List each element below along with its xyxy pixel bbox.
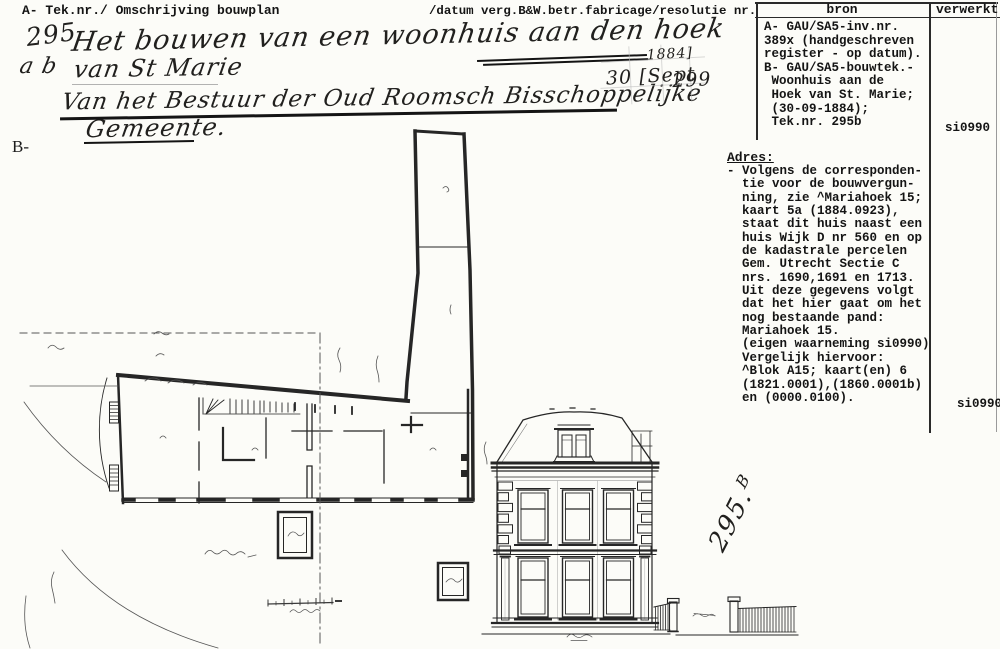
facade-base-ground	[482, 618, 798, 635]
handwritten-prefix2: a b	[17, 54, 60, 79]
rotated-plan-number-main: 295.	[703, 482, 758, 557]
plan-outbuilding-b	[438, 563, 468, 600]
facade-dormer-window	[554, 425, 594, 462]
table-left-border	[756, 2, 758, 140]
floor-plan-drawing	[0, 120, 500, 649]
plan-porch	[99, 378, 118, 491]
underline-line2	[72, 84, 218, 85]
handwritten-teknr: 295	[24, 17, 78, 52]
plan-illegible-annotations	[48, 332, 487, 603]
adres-title: Adres:	[727, 150, 774, 165]
facade-windows-lower	[515, 557, 637, 620]
plan-site-lines	[20, 333, 320, 648]
facade-cornice	[492, 463, 658, 481]
verwerkt-value-2: si0990	[957, 397, 1000, 411]
plan-outbuilding-a	[278, 512, 312, 558]
facade-illegible-annotations	[567, 614, 715, 641]
facade-walls	[497, 462, 652, 623]
plan-scale-bar	[268, 598, 341, 613]
bron-entry-text: A- GAU/SA5-inv.nr. 389x (handgeschreven …	[764, 21, 922, 130]
date-stamp: 1884] 30 [Sept 299	[598, 42, 713, 114]
facade-quoins	[498, 482, 652, 554]
rotated-plan-number: 295.B	[702, 469, 765, 557]
section-b-label: B-	[12, 137, 29, 157]
column-header-bron: bron	[755, 2, 929, 17]
facade-elevation-drawing	[480, 390, 800, 649]
stamp-year: 1884]	[646, 45, 693, 63]
stamp-number: 299	[672, 68, 712, 92]
facade-roof	[497, 408, 652, 462]
adres-body-text: - Volgens de corresponden- tie voor de b…	[727, 165, 930, 405]
facade-fence	[654, 597, 796, 632]
column-header-verwerkt: verwerkt	[936, 2, 998, 17]
facade-pilasters	[501, 557, 650, 621]
scanned-archive-card: A- Tek.nr./ Omschrijving bouwplan /datum…	[0, 0, 1000, 649]
header-left-label: A- Tek.nr./ Omschrijving bouwplan	[22, 3, 279, 18]
plan-main-walls	[118, 375, 473, 503]
facade-windows-upper	[515, 489, 637, 546]
plan-partitions	[199, 398, 422, 503]
verwerkt-value-1: si0990	[945, 121, 990, 135]
facade-floor-band	[494, 551, 656, 555]
handwritten-line2: van St Marie	[72, 52, 245, 83]
plan-staircase	[203, 398, 300, 414]
plan-wing	[406, 131, 473, 498]
page-edge-line	[996, 2, 997, 432]
